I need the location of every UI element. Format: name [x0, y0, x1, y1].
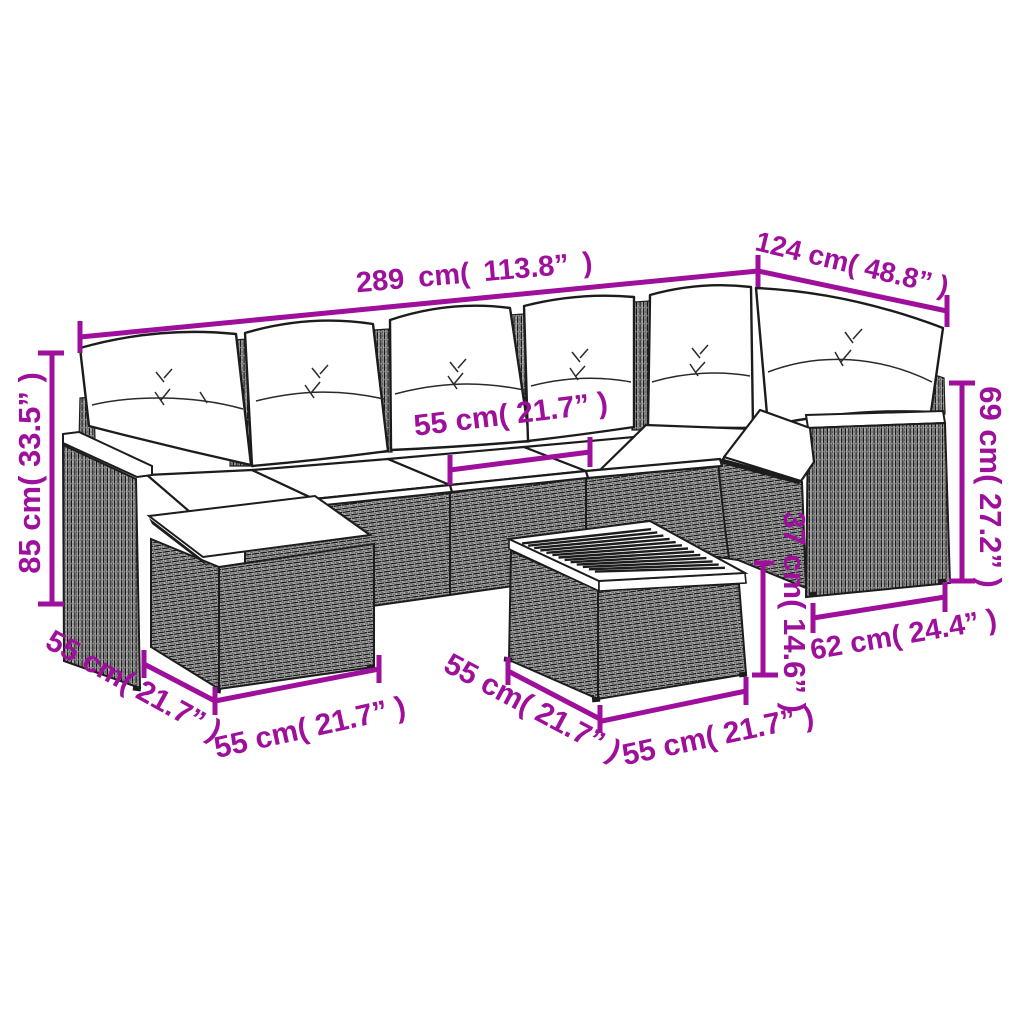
svg-text:37 cm( 14.6” ): 37 cm( 14.6” ): [777, 511, 812, 713]
svg-text:69 cm( 27.2” ): 69 cm( 27.2” ): [973, 386, 1008, 588]
svg-text:55 cm( 21.7” ): 55 cm( 21.7” ): [211, 691, 409, 765]
svg-text:85 cm( 33.5” ): 85 cm( 33.5” ): [12, 372, 47, 574]
